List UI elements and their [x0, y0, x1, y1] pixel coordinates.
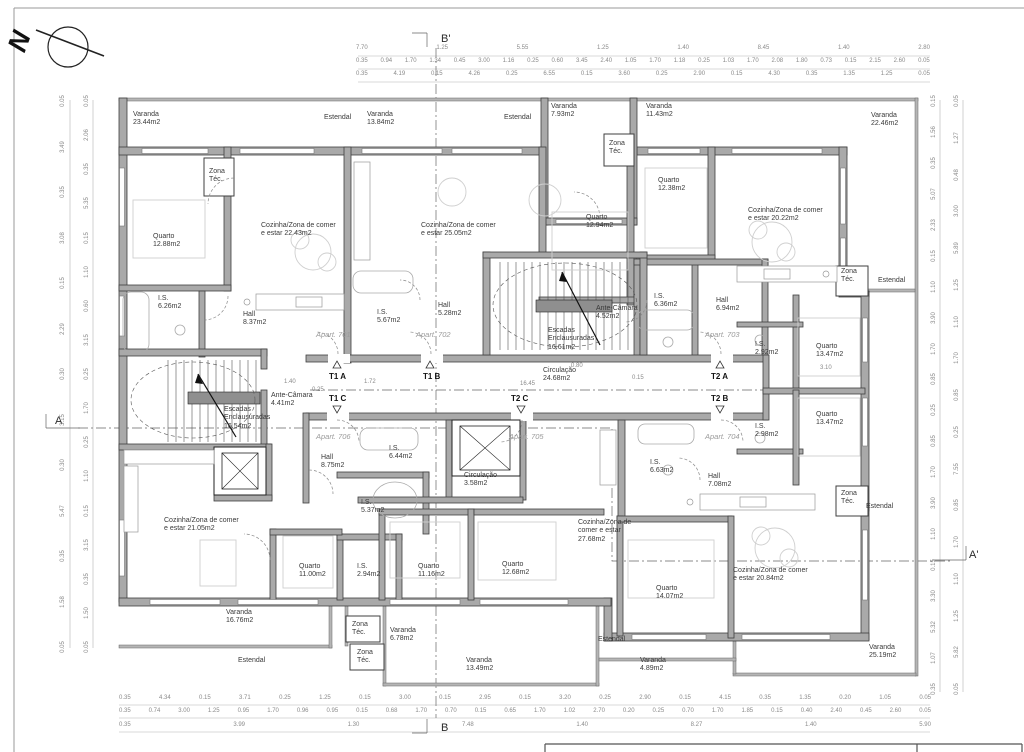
dimension-value: 0.35 [119, 695, 131, 701]
dimension-column: 0.053.490.353.080.152.290.303.150.305.47… [56, 98, 70, 650]
dimension-value: 1.70 [954, 536, 960, 548]
dimension-value: 2.70 [593, 708, 605, 714]
dimension-value: 1.70 [931, 466, 937, 478]
dimension-value: 0.25 [698, 58, 710, 64]
dimension-value: 0.15 [439, 695, 451, 701]
dimension-value: 3.00 [178, 708, 190, 714]
dimension-value: 1.35 [799, 695, 811, 701]
dimension-value: 0.25 [656, 71, 668, 77]
dimension-value: 2.33 [931, 219, 937, 231]
dimension-value: 0.65 [504, 708, 516, 714]
dimension-value: 1.70 [405, 58, 417, 64]
dimension-value: 2.40 [830, 708, 842, 714]
dimension-value: 0.95 [326, 708, 338, 714]
dimension-value: 1.25 [954, 610, 960, 622]
dimension-value: 0.35 [84, 573, 90, 585]
dimension-value: 0.35 [60, 550, 66, 562]
dimension-value: 2.40 [600, 58, 612, 64]
dimension-value: 1.07 [931, 652, 937, 664]
dimension-value: 0.40 [801, 708, 813, 714]
dimension-value: 3.00 [478, 58, 490, 64]
dimension-value: 1.70 [747, 58, 759, 64]
dimension-value: 1.70 [712, 708, 724, 714]
dimension-value: 0.05 [954, 95, 960, 107]
dimension-value: 0.35 [759, 695, 771, 701]
dimension-value: 0.15 [356, 708, 368, 714]
dimension-value: 0.05 [60, 641, 66, 653]
dimension-value: 3.49 [60, 141, 66, 153]
dimension-value: 4.34 [159, 695, 171, 701]
dimension-value: 0.94 [380, 58, 392, 64]
dimension-value: 1.58 [60, 596, 66, 608]
dimension-value: 0.25 [954, 426, 960, 438]
dimension-value: 0.15 [431, 71, 443, 77]
dimension-value: 5.89 [954, 242, 960, 254]
dimension-value: 0.35 [931, 157, 937, 169]
dimension-value: 0.15 [199, 695, 211, 701]
dimension-value: 0.25 [653, 708, 665, 714]
dimension-value: 1.25 [881, 71, 893, 77]
dimension-value: 1.35 [843, 71, 855, 77]
dimension-value: 1.25 [436, 45, 448, 51]
dimension-row: 7.701.255.551.251.408.451.402.80 [356, 45, 930, 51]
dimension-value: 3.90 [931, 312, 937, 324]
dimension-value: 0.05 [919, 695, 931, 701]
dimension-value: 1.10 [954, 573, 960, 585]
dimension-row: 0.354.340.153.710.251.250.153.000.152.95… [119, 695, 931, 701]
dimension-value: 0.05 [918, 71, 930, 77]
dimension-value: 0.85 [954, 389, 960, 401]
dimension-value: 4.19 [393, 71, 405, 77]
floorplan-sheet: N Varanda 23.44m2EstendalVaranda 13.84m2… [0, 0, 1024, 752]
dimension-value: 2.60 [894, 58, 906, 64]
dimension-value: 0.35 [356, 58, 368, 64]
dimension-value: 5.55 [517, 45, 529, 51]
dimension-value: 1.80 [796, 58, 808, 64]
dimension-value: 0.15 [845, 58, 857, 64]
dimension-value: 8.45 [758, 45, 770, 51]
dimension-value: 0.45 [454, 58, 466, 64]
dimension-column: 0.051.270.483.005.891.251.101.700.850.25… [950, 98, 964, 692]
dimension-value: 2.90 [639, 695, 651, 701]
dimension-value: 0.35 [931, 683, 937, 695]
dimension-value: 7.70 [356, 45, 368, 51]
dimension-column: 0.151.560.355.072.330.151.103.901.700.85… [927, 98, 941, 692]
dimension-row: 0.350.743.001.250.951.700.960.950.150.68… [119, 708, 931, 714]
dimension-value: 1.56 [931, 126, 937, 138]
dimension-value: 5.35 [84, 198, 90, 210]
dimension-value: 0.85 [954, 499, 960, 511]
dimension-value: 3.15 [84, 334, 90, 346]
dimension-value: 0.70 [682, 708, 694, 714]
dimension-value: 0.15 [679, 695, 691, 701]
dimension-value: 8.27 [691, 722, 703, 728]
dimension-value: 0.15 [931, 250, 937, 262]
dimension-value: 0.70 [445, 708, 457, 714]
dimension-value: 0.60 [552, 58, 564, 64]
dimension-value: 2.95 [479, 695, 491, 701]
dimension-value: 2.80 [918, 45, 930, 51]
dimension-value: 1.70 [267, 708, 279, 714]
dimension-value: 0.25 [279, 695, 291, 701]
dimension-value: 0.25 [506, 71, 518, 77]
dimension-value: 2.60 [890, 708, 902, 714]
dimension-value: 0.15 [84, 505, 90, 517]
dimension-value: 4.15 [719, 695, 731, 701]
dimension-value: 1.05 [625, 58, 637, 64]
dimension-value: 0.20 [839, 695, 851, 701]
dimension-value: 0.35 [119, 708, 131, 714]
dimension-value: 1.70 [534, 708, 546, 714]
dimension-value: 1.40 [805, 722, 817, 728]
dimension-value: 1.10 [954, 316, 960, 328]
dimension-value: 0.30 [60, 368, 66, 380]
dimension-value: 3.00 [954, 205, 960, 217]
dimension-value: 1.25 [208, 708, 220, 714]
dimension-value: 0.25 [599, 695, 611, 701]
dimension-value: 0.15 [475, 708, 487, 714]
dimension-value: 0.15 [359, 695, 371, 701]
dimension-value: 0.15 [731, 71, 743, 77]
dimension-value: 0.35 [119, 722, 131, 728]
dimension-value: 0.05 [954, 683, 960, 695]
dimension-value: 1.27 [954, 132, 960, 144]
dimension-value: 2.15 [869, 58, 881, 64]
dimension-value: 0.05 [919, 708, 931, 714]
dimension-value: 3.20 [559, 695, 571, 701]
dimension-value: 3.45 [576, 58, 588, 64]
dimension-value: 0.73 [820, 58, 832, 64]
dimension-value: 0.35 [84, 163, 90, 175]
dimension-value: 2.90 [693, 71, 705, 77]
dimension-value: 1.30 [348, 722, 360, 728]
dimension-value: 1.10 [931, 281, 937, 293]
dimension-value: 1.70 [649, 58, 661, 64]
dimension-value: 1.25 [597, 45, 609, 51]
dimension-value: 0.25 [931, 405, 937, 417]
dimension-row: 0.350.941.701.340.453.001.160.250.603.45… [356, 58, 930, 64]
dimension-value: 1.25 [319, 695, 331, 701]
dimension-value: 0.25 [527, 58, 539, 64]
dimension-value: 1.70 [415, 708, 427, 714]
dimension-value: 1.05 [879, 695, 891, 701]
dimension-value: 0.15 [931, 559, 937, 571]
dimension-value: 1.40 [838, 45, 850, 51]
dimension-value: 0.60 [84, 300, 90, 312]
dimension-value: 1.16 [503, 58, 515, 64]
dimension-value: 1.10 [931, 528, 937, 540]
dimension-value: 3.71 [239, 695, 251, 701]
dimension-value: 1.10 [84, 266, 90, 278]
dimension-value: 4.30 [768, 71, 780, 77]
dimension-value: 3.60 [618, 71, 630, 77]
dimension-value: 7.55 [954, 463, 960, 475]
dimension-value: 3.08 [60, 232, 66, 244]
dimension-value: 5.47 [60, 505, 66, 517]
dimension-value: 0.45 [860, 708, 872, 714]
dimension-value: 0.68 [386, 708, 398, 714]
dimension-value: 0.74 [149, 708, 161, 714]
dimension-value: 0.20 [623, 708, 635, 714]
dimension-value: 1.34 [429, 58, 441, 64]
dimension-value: 0.35 [356, 71, 368, 77]
dimension-value: 0.15 [60, 277, 66, 289]
dimension-value: 0.05 [918, 58, 930, 64]
dimension-value: 1.70 [954, 352, 960, 364]
dimension-value: 2.08 [771, 58, 783, 64]
dimension-value: 3.15 [84, 539, 90, 551]
dimension-value: 3.15 [60, 414, 66, 426]
dimension-value: 0.15 [581, 71, 593, 77]
dimension-value: 1.10 [84, 471, 90, 483]
dimension-value: 0.48 [954, 169, 960, 181]
dimensions-layer: 7.701.255.551.251.408.451.402.800.350.94… [0, 0, 1024, 752]
dimension-row: 0.354.190.154.260.256.550.153.600.252.90… [356, 71, 930, 77]
dimension-value: 0.35 [806, 71, 818, 77]
dimension-value: 0.15 [771, 708, 783, 714]
dimension-value: 0.15 [519, 695, 531, 701]
dimension-value: 0.85 [931, 435, 937, 447]
dimension-value: 1.85 [741, 708, 753, 714]
dimension-value: 6.55 [543, 71, 555, 77]
dimension-value: 1.50 [84, 607, 90, 619]
dimension-value: 1.40 [576, 722, 588, 728]
dimension-value: 0.05 [84, 641, 90, 653]
dimension-value: 1.70 [84, 402, 90, 414]
dimension-row: 0.353.991.307.481.408.271.405.90 [119, 722, 931, 728]
dimension-value: 2.06 [84, 129, 90, 141]
dimension-value: 3.99 [233, 722, 245, 728]
dimension-value: 3.90 [931, 497, 937, 509]
dimension-value: 1.03 [723, 58, 735, 64]
dimension-value: 7.48 [462, 722, 474, 728]
dimension-value: 0.05 [84, 95, 90, 107]
dimension-value: 2.29 [60, 323, 66, 335]
dimension-value: 0.96 [297, 708, 309, 714]
dimension-value: 5.82 [954, 646, 960, 658]
dimension-value: 1.02 [564, 708, 576, 714]
dimension-column: 0.052.060.355.350.151.100.603.150.251.70… [80, 98, 94, 650]
dimension-value: 0.25 [84, 368, 90, 380]
dimension-value: 0.35 [60, 186, 66, 198]
dimension-value: 0.85 [931, 374, 937, 386]
dimension-value: 4.26 [468, 71, 480, 77]
dimension-value: 1.70 [931, 343, 937, 355]
dimension-value: 0.25 [84, 436, 90, 448]
dimension-value: 0.15 [84, 232, 90, 244]
dimension-value: 0.30 [60, 459, 66, 471]
dimension-value: 0.05 [60, 95, 66, 107]
dimension-value: 5.32 [931, 621, 937, 633]
dimension-value: 5.90 [919, 722, 931, 728]
dimension-value: 3.00 [399, 695, 411, 701]
dimension-value: 0.15 [931, 95, 937, 107]
dimension-value: 1.25 [954, 279, 960, 291]
dimension-value: 3.30 [931, 590, 937, 602]
dimension-value: 5.07 [931, 188, 937, 200]
dimension-value: 0.95 [238, 708, 250, 714]
dimension-value: 1.40 [677, 45, 689, 51]
dimension-value: 1.18 [674, 58, 686, 64]
